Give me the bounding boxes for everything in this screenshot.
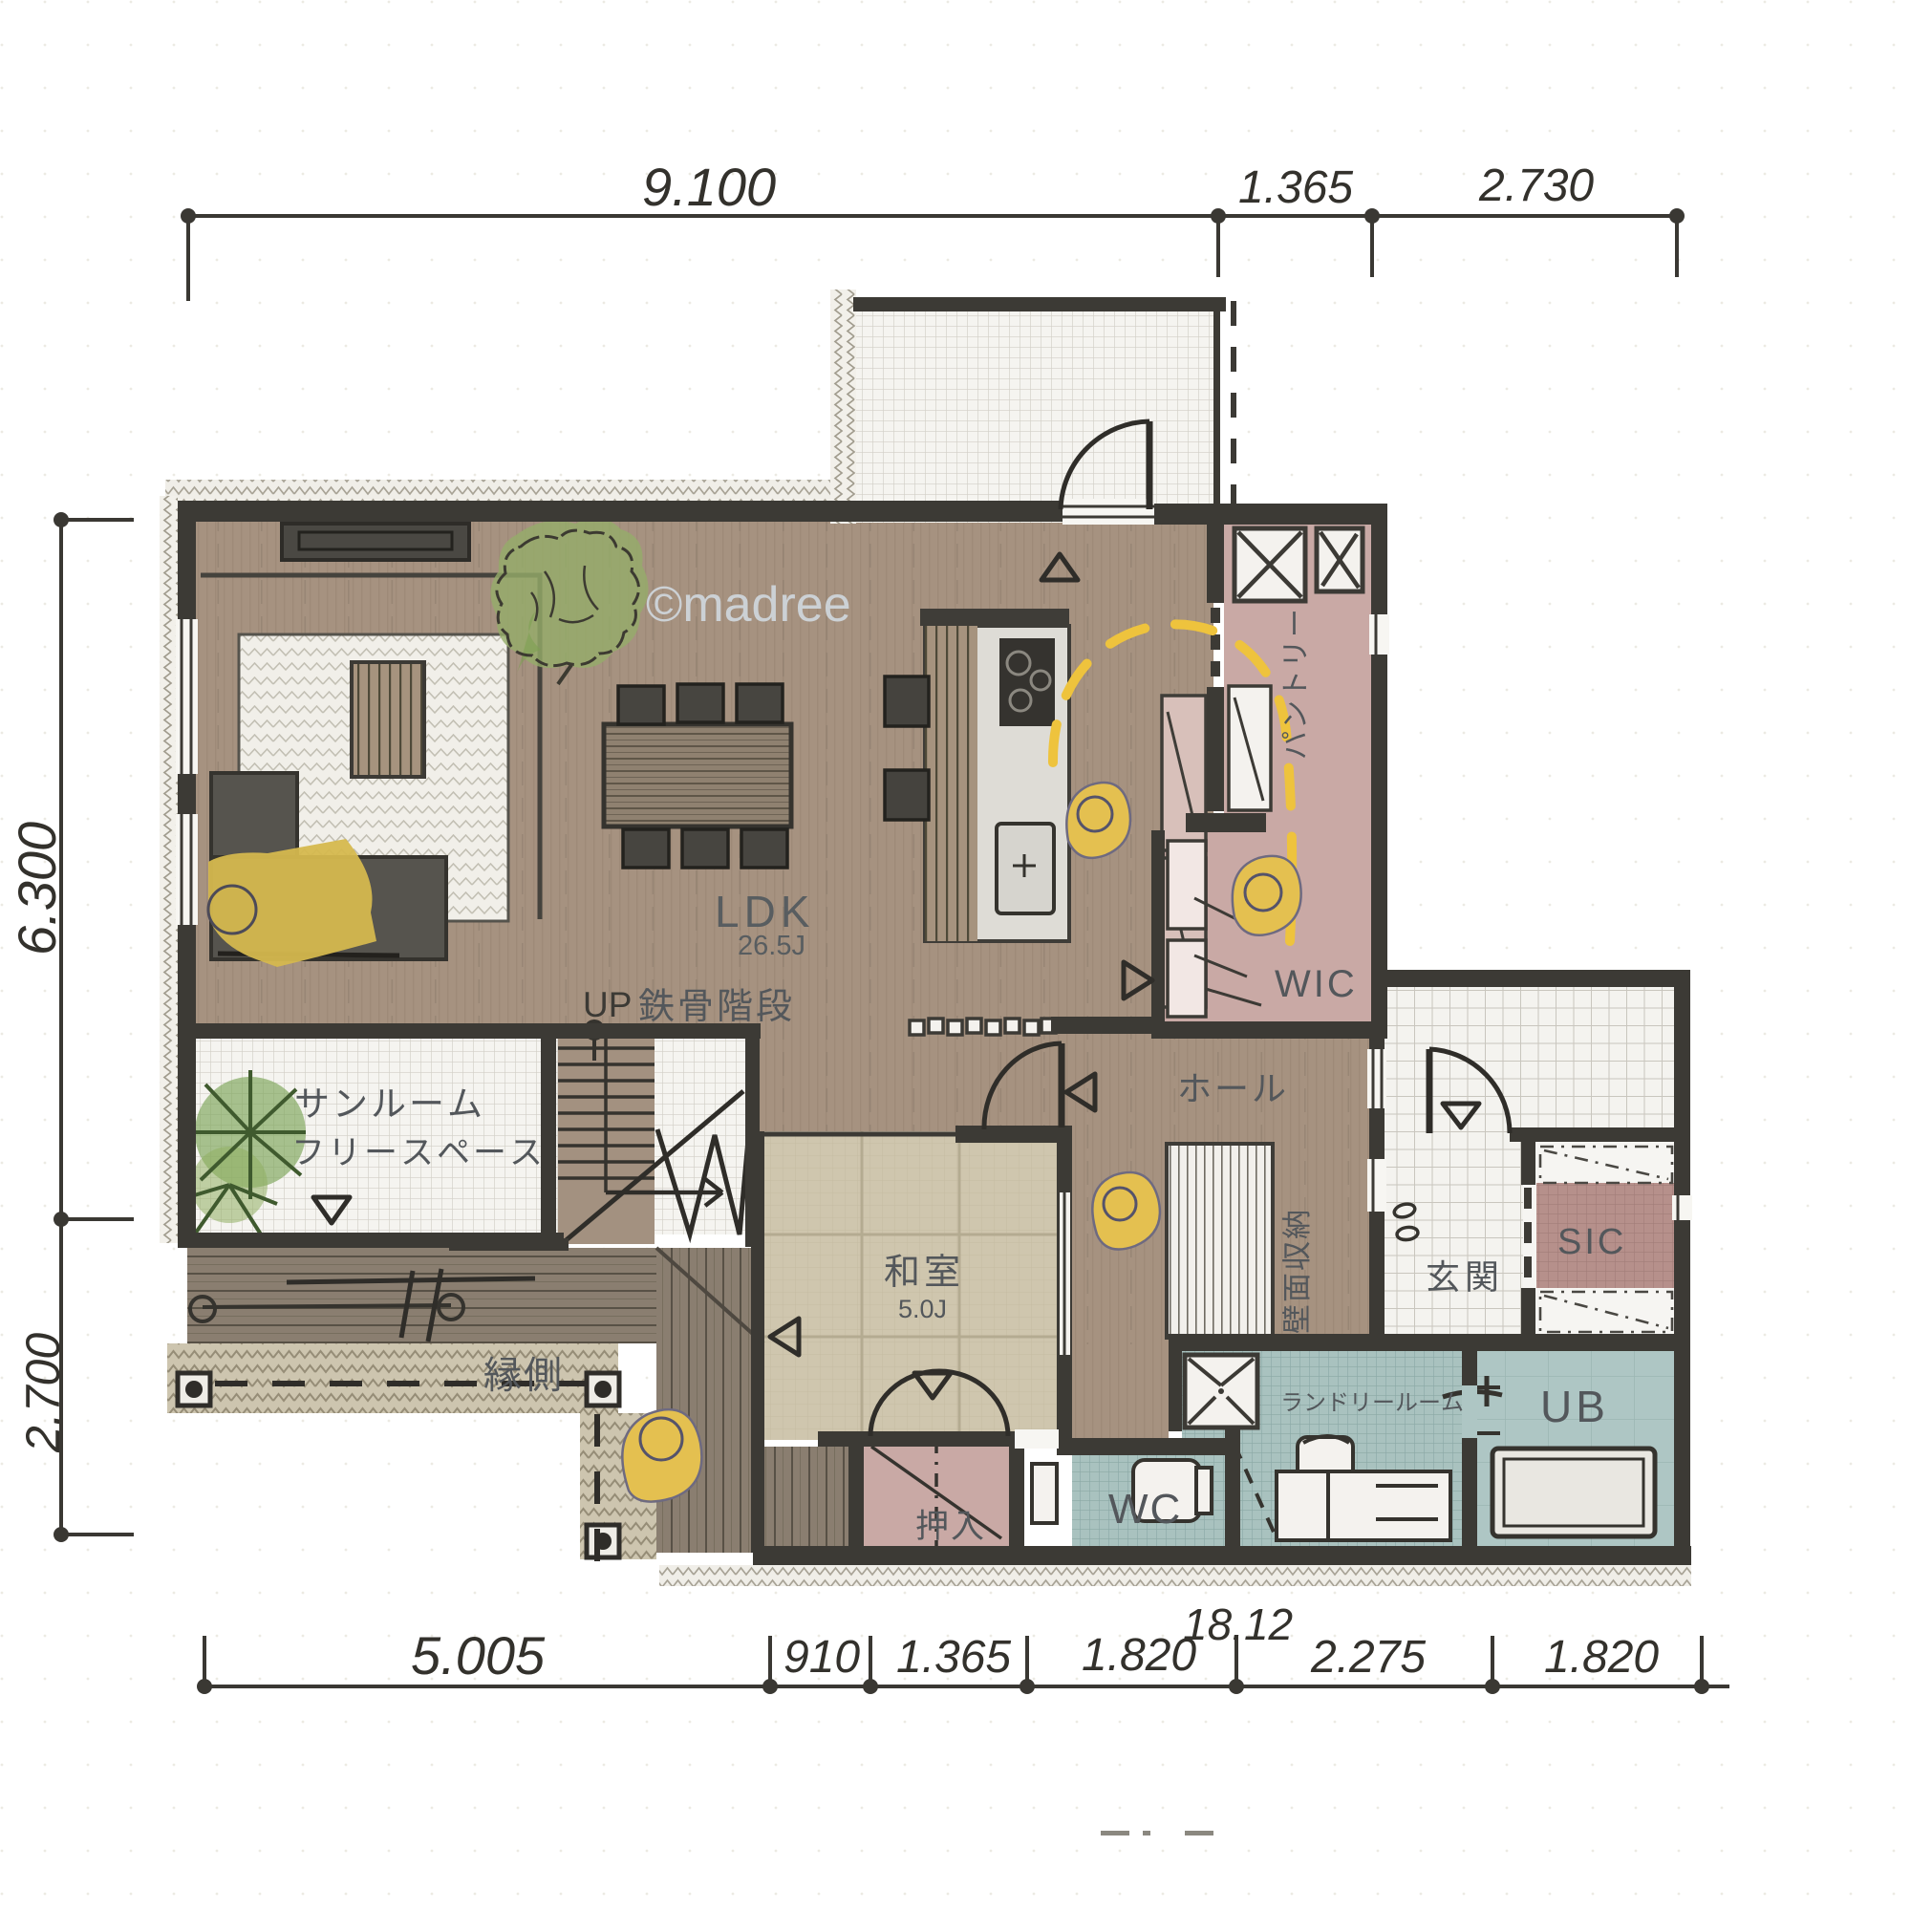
svg-text:1.365: 1.365 — [1238, 162, 1353, 213]
svg-text:6.300: 6.300 — [7, 822, 67, 955]
svg-text:9.100: 9.100 — [642, 157, 776, 217]
svg-text:910: 910 — [784, 1632, 860, 1683]
svg-text:UP: UP — [583, 985, 632, 1024]
svg-text:1.820: 1.820 — [1082, 1630, 1196, 1681]
svg-text:26.5J: 26.5J — [738, 931, 805, 961]
svg-text:5.0J: 5.0J — [898, 1295, 947, 1323]
svg-text:1.820: 1.820 — [1544, 1632, 1659, 1683]
svg-text:WC: WC — [1108, 1486, 1182, 1533]
svg-text:LDK: LDK — [715, 887, 814, 936]
svg-text:SIC: SIC — [1557, 1222, 1626, 1262]
svg-text:18.12: 18.12 — [1183, 1599, 1293, 1649]
svg-text:2.730: 2.730 — [1478, 161, 1594, 211]
svg-text:2.275: 2.275 — [1310, 1632, 1426, 1683]
svg-text:UB: UB — [1540, 1382, 1609, 1431]
svg-text:©madree: ©madree — [646, 577, 851, 633]
svg-text:WIC: WIC — [1275, 963, 1358, 1005]
svg-text:2.700: 2.700 — [16, 1333, 70, 1453]
svg-text:1.365: 1.365 — [896, 1632, 1011, 1683]
svg-text:5.005: 5.005 — [411, 1625, 546, 1685]
